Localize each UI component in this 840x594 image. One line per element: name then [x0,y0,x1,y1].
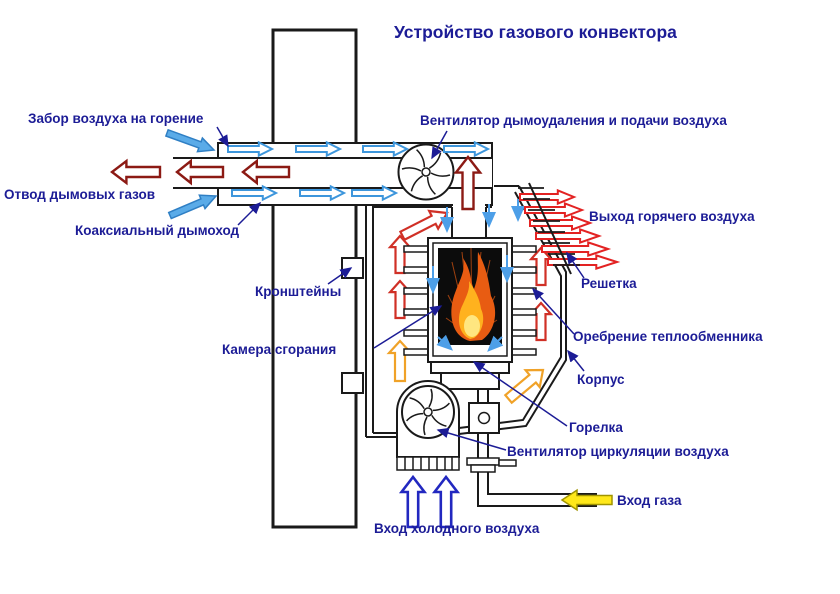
label-heat-exchanger-fins: Оребрение теплообменника [573,329,763,344]
label-brackets: Кронштейны [255,284,341,299]
label-air-intake: Забор воздуха на горение [28,111,204,126]
label-coaxial-chimney: Коаксиальный дымоход [75,223,240,238]
label-grille: Решетка [581,276,637,291]
fin [404,349,428,355]
air-intake-arrow [165,126,217,157]
combustion-chamber [404,238,536,389]
fin [404,288,428,294]
gas-convector-diagram: Устройство газового конвектора Забор воз… [0,0,840,594]
fan-grille [397,457,459,470]
bracket [342,373,363,393]
fin [512,330,536,336]
label-combustion-chamber: Камера сгорания [222,342,336,357]
fin [512,349,536,355]
label-casing: Корпус [577,372,625,387]
label-circulation-fan: Вентилятор циркуляции воздуха [507,444,729,459]
label-smoke-exhaust-fan: Вентилятор дымоудаления и подачи воздуха [420,113,727,128]
diagram-canvas: Устройство газового конвектора Забор воз… [0,0,840,594]
label-cold-air-inlet: Вход холодного воздуха [374,521,540,536]
cold-air-arrows [402,477,458,527]
gas-valve [469,403,499,433]
fin [404,309,428,315]
air-intake-arrow [167,189,219,222]
fin [512,246,536,252]
fin [404,267,428,273]
fin [404,330,428,336]
fin [404,246,428,252]
burner-base [431,362,509,373]
fin [512,288,536,294]
circulation-fan-icon [402,386,454,438]
label-gas-inlet: Вход газа [617,493,682,508]
fin [512,267,536,273]
diagram-title: Устройство газового конвектора [394,22,677,42]
label-hot-air-outlet: Выход горячего воздуха [589,209,755,224]
bracket [342,258,363,278]
fin [512,309,536,315]
label-flue-gas-outlet: Отвод дымовых газов [4,187,155,202]
circulation-fan-unit [397,381,459,470]
burner-base [441,373,499,389]
label-burner: Горелка [569,420,623,435]
